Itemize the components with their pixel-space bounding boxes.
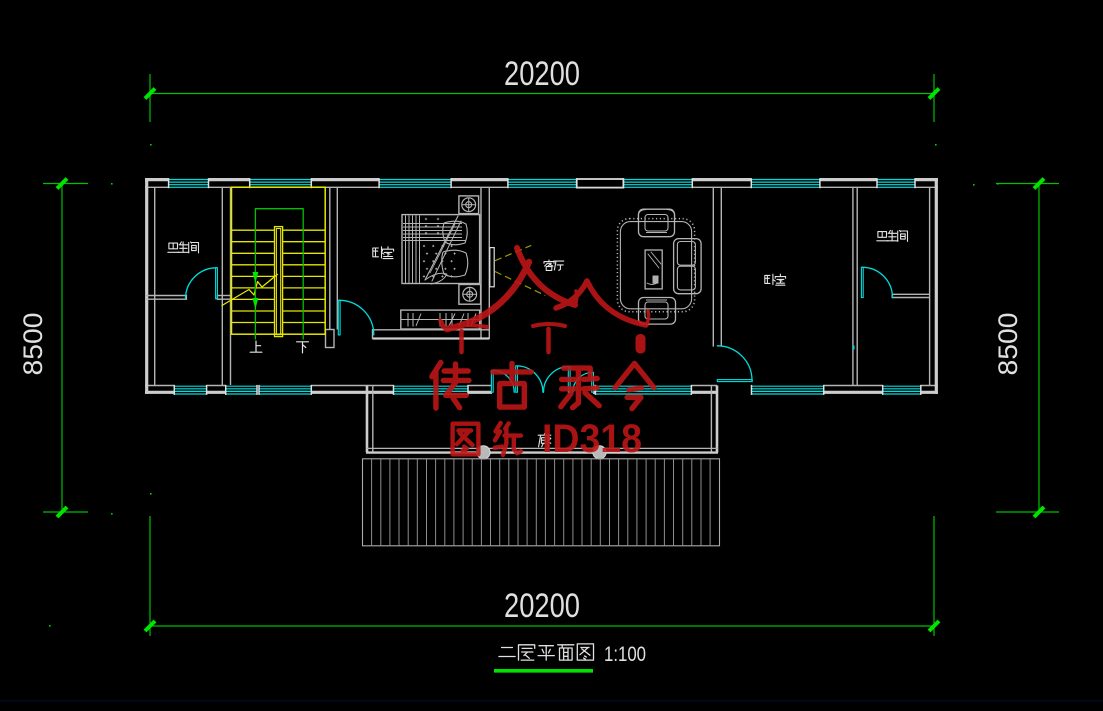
svg-text:8500: 8500 (993, 313, 1023, 376)
svg-text:ID318: ID318 (542, 417, 642, 461)
svg-text:20200: 20200 (504, 55, 580, 93)
svg-text:8500: 8500 (18, 313, 48, 376)
svg-text:1:100: 1:100 (604, 643, 646, 666)
svg-text:20200: 20200 (504, 587, 580, 625)
